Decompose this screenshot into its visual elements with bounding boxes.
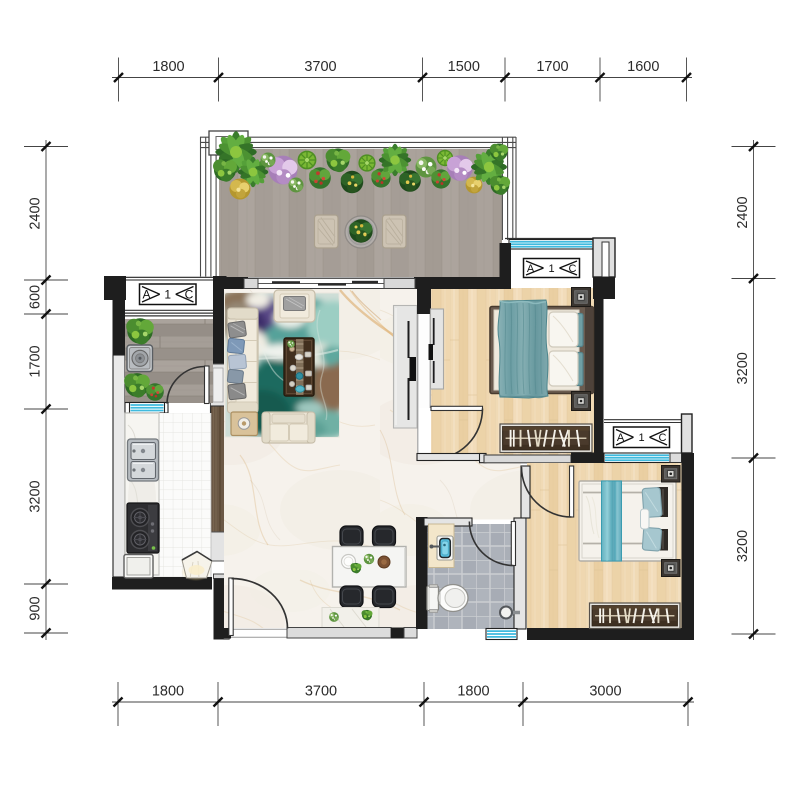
svg-text:3700: 3700: [305, 684, 337, 700]
svg-text:1: 1: [638, 432, 644, 444]
svg-text:2400: 2400: [28, 197, 44, 229]
svg-text:2400: 2400: [735, 196, 751, 228]
svg-text:1: 1: [164, 288, 171, 302]
svg-text:1800: 1800: [457, 684, 489, 700]
svg-text:3200: 3200: [735, 352, 751, 384]
svg-text:600: 600: [28, 285, 44, 309]
svg-text:900: 900: [28, 596, 44, 620]
svg-text:A: A: [142, 288, 150, 302]
svg-text:1800: 1800: [152, 59, 184, 75]
svg-text:1700: 1700: [536, 59, 568, 75]
svg-text:C: C: [185, 288, 194, 302]
svg-text:A: A: [617, 432, 625, 444]
svg-text:3700: 3700: [304, 59, 336, 75]
svg-text:3200: 3200: [28, 480, 44, 512]
svg-text:3200: 3200: [735, 530, 751, 562]
svg-text:A: A: [527, 263, 535, 275]
svg-text:1500: 1500: [448, 59, 480, 75]
svg-text:C: C: [659, 432, 667, 444]
svg-text:1800: 1800: [152, 684, 184, 700]
svg-text:C: C: [569, 263, 577, 275]
svg-text:3000: 3000: [589, 684, 621, 700]
svg-text:1: 1: [548, 263, 554, 275]
svg-text:1600: 1600: [627, 59, 659, 75]
svg-text:1700: 1700: [28, 345, 44, 377]
